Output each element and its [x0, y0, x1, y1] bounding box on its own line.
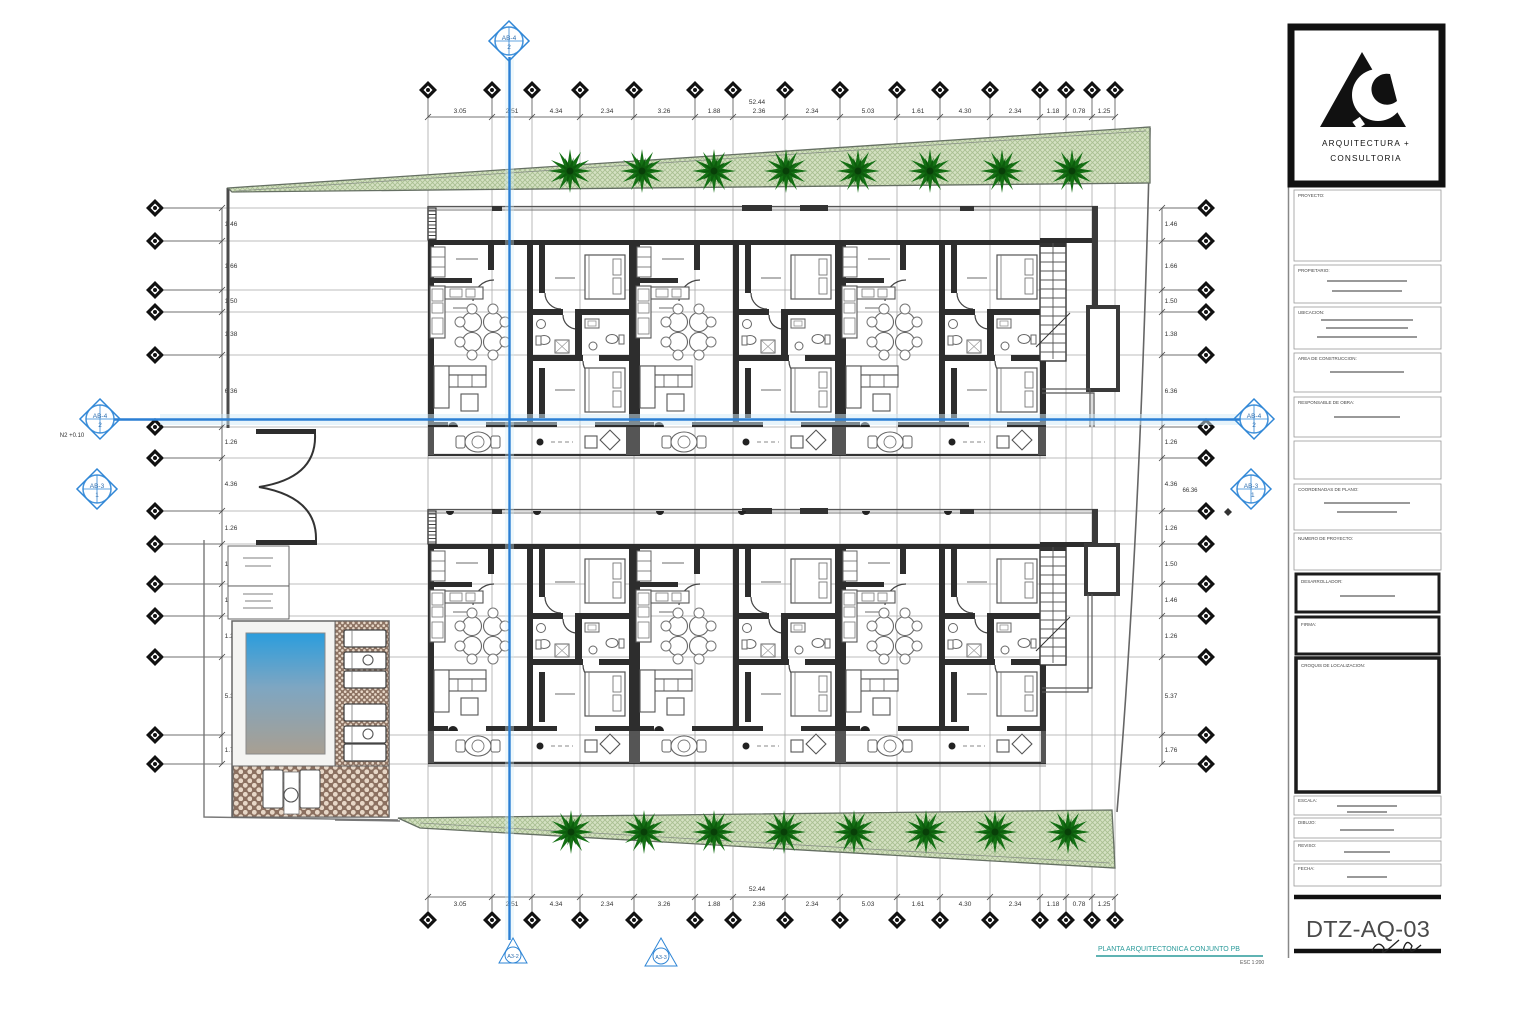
svg-text:4.30: 4.30 [959, 901, 972, 908]
svg-text:1.38: 1.38 [1165, 331, 1178, 338]
svg-text:ESCALA:: ESCALA: [1298, 798, 1317, 803]
svg-text:PLANTA ARQUITECTONICA CONJUN: PLANTA ARQUITECTONICA CONJUNTO PB [1098, 946, 1240, 953]
svg-text:3.05: 3.05 [454, 901, 467, 908]
svg-text:1.76: 1.76 [1165, 747, 1178, 754]
svg-text:1.26: 1.26 [1165, 439, 1178, 446]
svg-text:DESARROLLADOR:: DESARROLLADOR: [1301, 579, 1343, 584]
svg-text:REVISO:: REVISO: [1298, 843, 1316, 848]
svg-text:1.50: 1.50 [1165, 298, 1178, 305]
svg-text:AB-4: AB-4 [93, 413, 108, 420]
svg-text:1.26: 1.26 [225, 439, 238, 446]
svg-text:AB-4: AB-4 [502, 35, 517, 42]
svg-text:1: 1 [95, 492, 99, 499]
svg-text:AREA DE CONSTRUCCION:: AREA DE CONSTRUCCION: [1298, 356, 1357, 361]
svg-text:1.61: 1.61 [912, 901, 925, 908]
svg-text:2.34: 2.34 [1009, 901, 1022, 908]
svg-text:AB-3: AB-3 [1244, 483, 1259, 490]
svg-text:2.36: 2.36 [753, 108, 766, 115]
svg-text:1.46: 1.46 [1165, 597, 1178, 604]
svg-text:52.44: 52.44 [749, 99, 766, 106]
svg-text:1.26: 1.26 [225, 525, 238, 532]
svg-text:ESC 1:200: ESC 1:200 [1240, 960, 1264, 966]
svg-text:5.03: 5.03 [862, 901, 875, 908]
svg-text:1.26: 1.26 [1165, 633, 1178, 640]
svg-text:1.26: 1.26 [1165, 525, 1178, 532]
svg-text:2.34: 2.34 [806, 901, 819, 908]
svg-text:5.03: 5.03 [862, 108, 875, 115]
svg-text:RESPONSABLE DE OBRA:: RESPONSABLE DE OBRA: [1298, 400, 1354, 405]
svg-text:4.34: 4.34 [550, 901, 563, 908]
svg-text:PROYECTO:: PROYECTO: [1298, 193, 1324, 198]
svg-text:1.61: 1.61 [912, 108, 925, 115]
svg-text:4.36: 4.36 [225, 481, 238, 488]
svg-text:2.34: 2.34 [601, 108, 614, 115]
svg-text:2.34: 2.34 [601, 901, 614, 908]
svg-text:1.46: 1.46 [1165, 221, 1178, 228]
svg-text:1.25: 1.25 [1098, 108, 1111, 115]
svg-text:0.78: 0.78 [1073, 901, 1086, 908]
svg-text:2.34: 2.34 [1009, 108, 1022, 115]
svg-text:4.36: 4.36 [1165, 481, 1178, 488]
svg-text:FIRMA:: FIRMA: [1301, 622, 1316, 627]
svg-text:1.18: 1.18 [1047, 901, 1060, 908]
svg-text:0.78: 0.78 [1073, 108, 1086, 115]
svg-text:6.36: 6.36 [1165, 388, 1178, 395]
svg-text:A3-2: A3-2 [507, 954, 519, 960]
svg-text:CROQUIS DE LOCALIZACION:: CROQUIS DE LOCALIZACION: [1301, 663, 1365, 668]
svg-text:2: 2 [1252, 422, 1256, 429]
svg-text:A3-3: A3-3 [655, 955, 667, 961]
svg-text:3.05: 3.05 [454, 108, 467, 115]
svg-text:AB-4: AB-4 [1247, 413, 1262, 420]
svg-text:5.37: 5.37 [1165, 693, 1178, 700]
svg-text:DIBUJO:: DIBUJO: [1298, 820, 1316, 825]
svg-text:ARQUITECTURA +: ARQUITECTURA + [1322, 139, 1410, 148]
svg-text:1.18: 1.18 [1047, 108, 1060, 115]
svg-text:UBICACION:: UBICACION: [1298, 310, 1324, 315]
svg-text:1.66: 1.66 [1165, 263, 1178, 270]
svg-text:3.26: 3.26 [658, 108, 671, 115]
svg-text:1: 1 [1251, 492, 1255, 499]
svg-text:52.44: 52.44 [749, 886, 766, 893]
svg-text:FECHA:: FECHA: [1298, 866, 1315, 871]
svg-text:N2 +0.10: N2 +0.10 [60, 433, 85, 439]
svg-text:DTZ-AQ-03: DTZ-AQ-03 [1306, 916, 1430, 942]
svg-text:NUMERO DE PROYECTO:: NUMERO DE PROYECTO: [1298, 536, 1353, 541]
svg-text:3.26: 3.26 [658, 901, 671, 908]
svg-text:2: 2 [507, 44, 511, 51]
svg-text:4.30: 4.30 [959, 108, 972, 115]
svg-text:CONSULTORIA: CONSULTORIA [1330, 154, 1402, 163]
svg-text:4.34: 4.34 [550, 108, 563, 115]
svg-text:COORDENADAS DE PLANO:: COORDENADAS DE PLANO: [1298, 487, 1359, 492]
svg-text:AB-3: AB-3 [90, 483, 105, 490]
svg-text:1.25: 1.25 [1098, 901, 1111, 908]
svg-text:2: 2 [98, 422, 102, 429]
svg-text:1.88: 1.88 [708, 901, 721, 908]
svg-text:1.50: 1.50 [1165, 561, 1178, 568]
svg-text:2.34: 2.34 [806, 108, 819, 115]
svg-text:2.36: 2.36 [753, 901, 766, 908]
svg-text:66.36: 66.36 [1182, 488, 1198, 494]
svg-text:PROPIETARIO:: PROPIETARIO: [1298, 268, 1330, 273]
svg-text:1.88: 1.88 [708, 108, 721, 115]
